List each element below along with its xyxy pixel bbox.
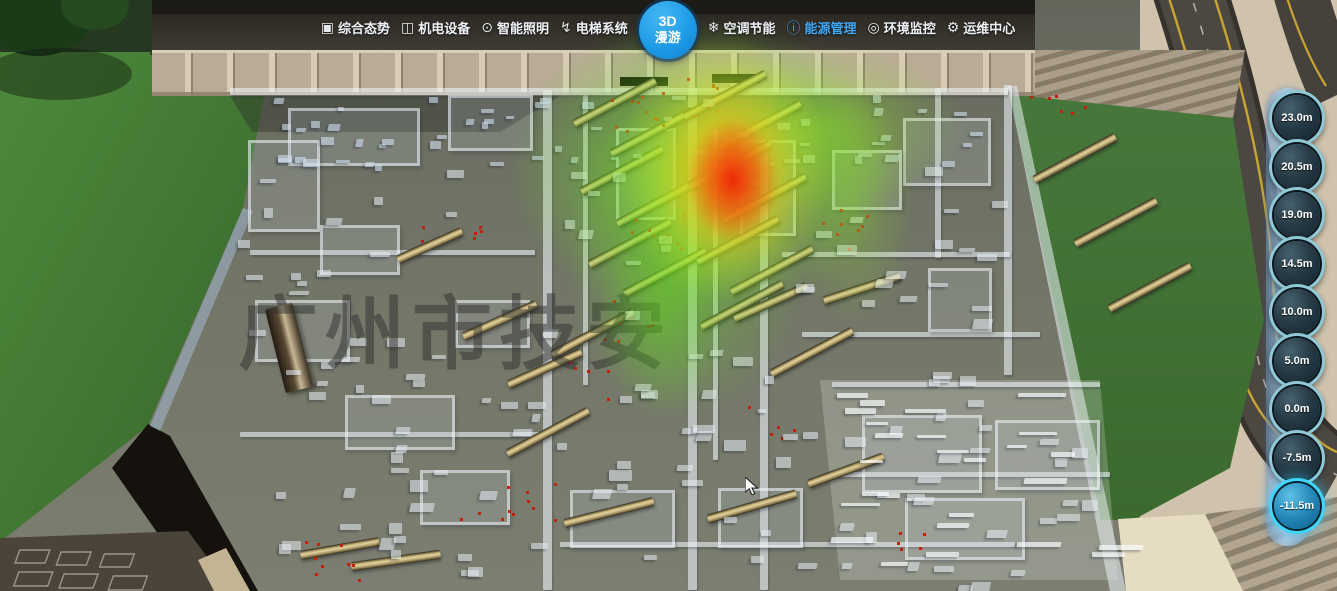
floor-level-button-23-0m[interactable]: 23.0m [1274,95,1320,141]
floor-level-button-19-0m[interactable]: 19.0m [1274,192,1320,238]
floor-level-button-0-0m[interactable]: 0.0m [1274,386,1320,432]
gear-icon: ⚙ [947,19,960,36]
nav-label: 空调节能 [723,18,775,37]
floor-level-button-minus-7-5m[interactable]: -7.5m [1274,435,1320,481]
nav-label: 综合态势 [338,18,390,37]
nav-item-overview[interactable]: ▣ 综合态势 [321,18,390,37]
roam-3d-line1: 3D [659,13,677,31]
floor-level-button-10-0m[interactable]: 10.0m [1274,289,1320,335]
snowflake-icon: ❄ [708,19,720,36]
floor-level-button-14-5m[interactable]: 14.5m [1274,241,1320,287]
monitor-icon: ▣ [321,19,334,36]
top-nav-bar: ▣ 综合态势 ◫ 机电设备 ⊙ 智能照明 ↯ 电梯系统 3D 漫游 ❄ 空调节能… [240,0,1096,55]
nav-label: 智能照明 [497,18,549,37]
info-circle-icon: ⓘ [786,18,800,38]
nav-item-energy[interactable]: ⓘ 能源管理 [786,18,856,38]
nav-item-hvac[interactable]: ❄ 空调节能 [708,18,776,37]
floor-level-button-minus-11-5m[interactable]: -11.5m [1274,483,1320,529]
floor-level-button-5-0m[interactable]: 5.0m [1274,338,1320,384]
floor-level-button-20-5m[interactable]: 20.5m [1274,144,1320,190]
nav-label: 环境监控 [884,18,936,37]
environment-icon: ◎ [867,19,879,36]
nav-label: 电梯系统 [576,18,628,37]
nav-item-elevator[interactable]: ↯ 电梯系统 [560,18,628,37]
scene-3d-background [0,0,1337,591]
nav-label: 运维中心 [963,18,1015,37]
roam-3d-button[interactable]: 3D 漫游 [639,1,697,59]
bulb-icon: ⊙ [481,19,493,36]
nav-label: 机电设备 [418,18,470,37]
nav-item-equipment[interactable]: ◫ 机电设备 [401,18,470,37]
nav-item-environment[interactable]: ◎ 环境监控 [867,18,935,37]
device-icon: ◫ [401,19,414,36]
nav-item-lighting[interactable]: ⊙ 智能照明 [481,18,549,37]
roam-3d-line2: 漫游 [655,30,681,46]
escalator-icon: ↯ [560,19,572,36]
digital-twin-dashboard: 广州市技安 ▣ 综合态势 ◫ 机电设备 ⊙ 智能照明 ↯ 电梯系统 3D 漫游 … [0,0,1337,591]
nav-label: 能源管理 [804,18,856,37]
nav-item-operations[interactable]: ⚙ 运维中心 [947,18,1016,37]
